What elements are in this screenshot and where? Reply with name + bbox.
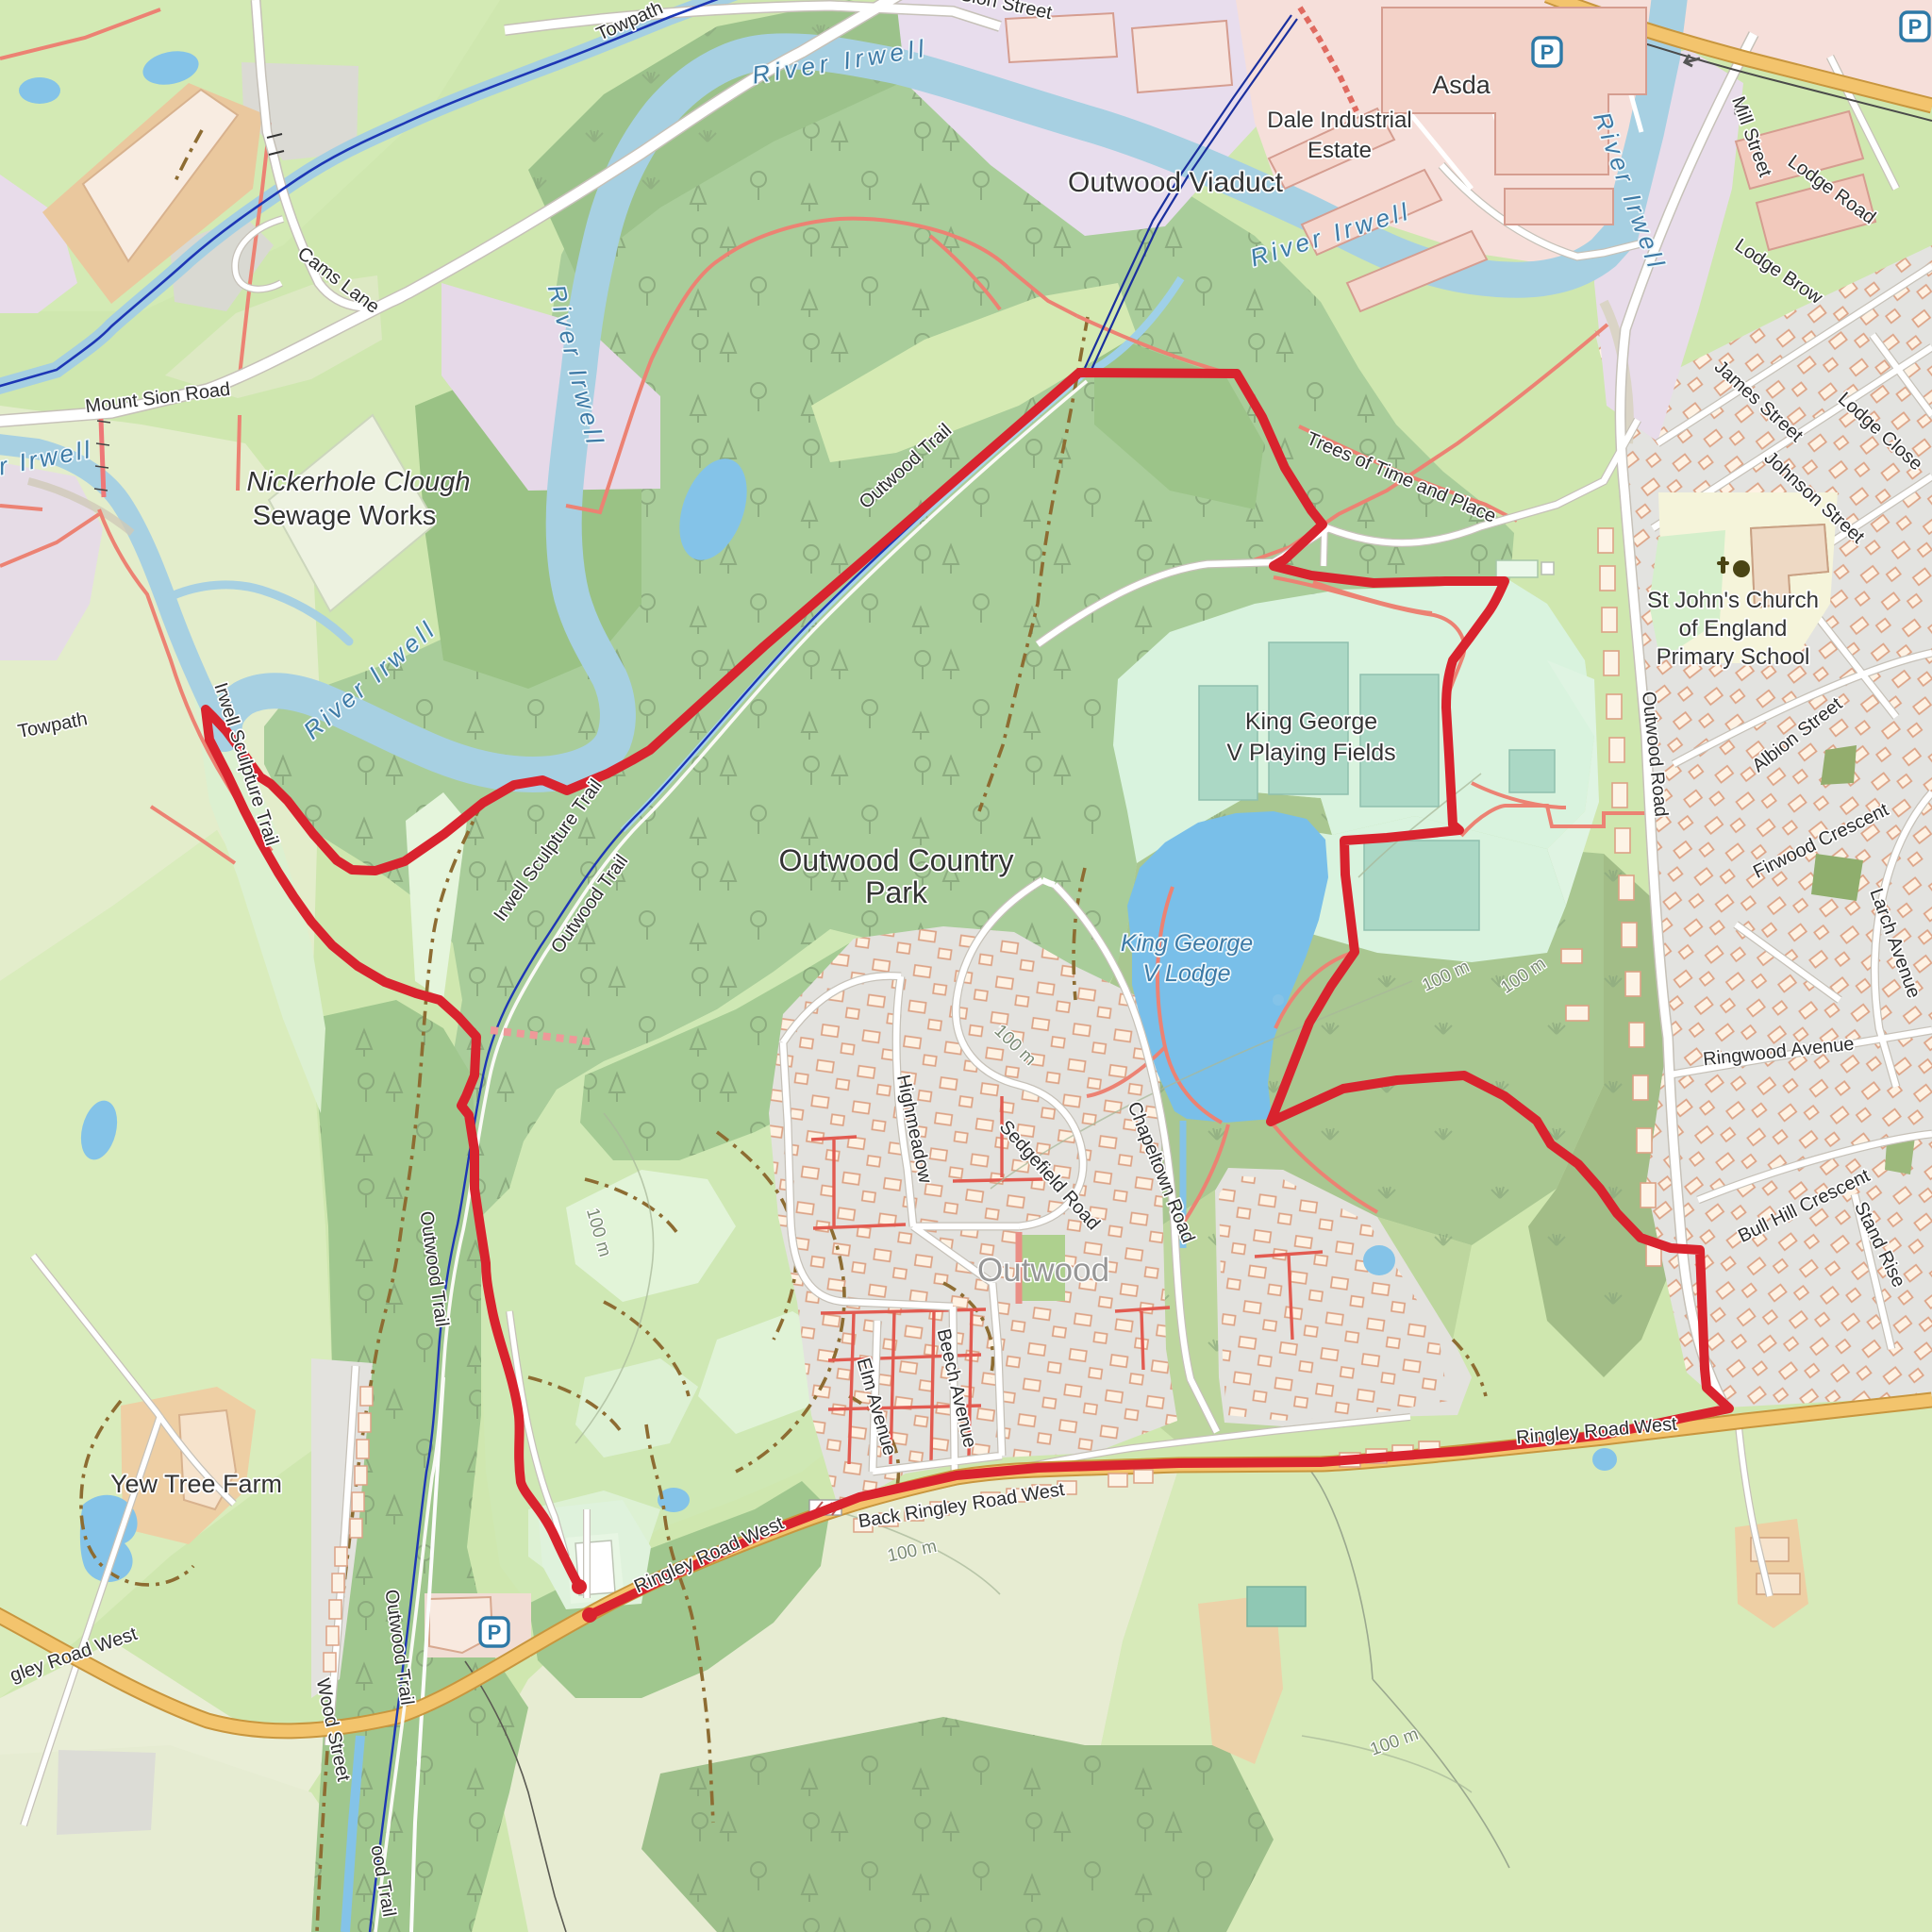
svg-text:P: P — [1541, 41, 1555, 64]
svg-text:V Lodge: V Lodge — [1142, 960, 1230, 987]
svg-text:of England: of England — [1679, 616, 1788, 641]
svg-text:Outwood: Outwood — [977, 1252, 1109, 1289]
svg-text:King George: King George — [1245, 708, 1377, 735]
svg-text:Sewage Works: Sewage Works — [253, 501, 437, 531]
svg-text:Estate: Estate — [1307, 138, 1372, 163]
svg-text:Nickerhole Clough: Nickerhole Clough — [247, 467, 471, 497]
svg-text:Park: Park — [865, 875, 928, 909]
svg-text:Dale Industrial: Dale Industrial — [1267, 108, 1411, 133]
svg-text:P: P — [1908, 15, 1923, 39]
svg-text:Yew Tree Farm: Yew Tree Farm — [110, 1470, 282, 1498]
svg-text:V Playing Fields: V Playing Fields — [1226, 740, 1395, 766]
svg-text:Outwood Country: Outwood Country — [778, 843, 1013, 877]
svg-text:Primary School: Primary School — [1657, 644, 1810, 670]
svg-text:P: P — [488, 1621, 502, 1644]
svg-text:Outwood Viaduct: Outwood Viaduct — [1068, 167, 1284, 198]
svg-text:Asda: Asda — [1432, 71, 1491, 99]
svg-text:St John's Church: St John's Church — [1647, 588, 1819, 613]
svg-text:King George: King George — [1121, 930, 1253, 957]
